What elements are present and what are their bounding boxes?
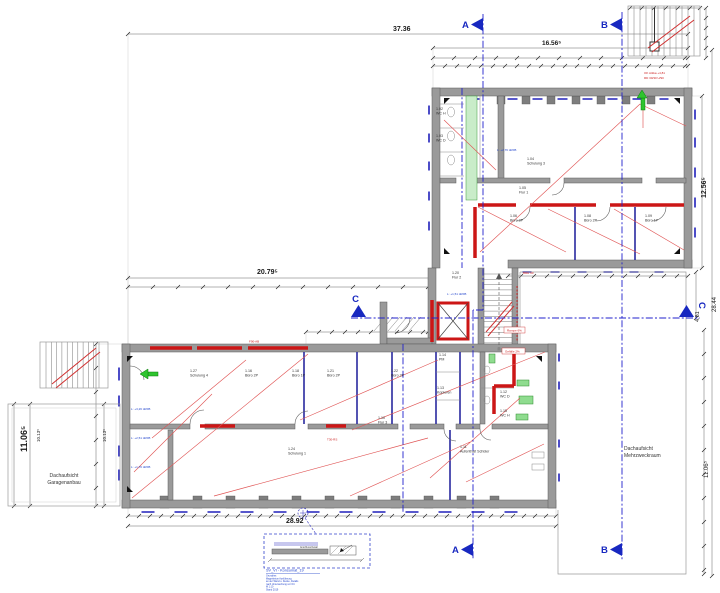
dim-wing-width: 16.56⁵ xyxy=(542,40,561,47)
upper-wing-south-wall xyxy=(508,260,692,268)
section-marker-a-bottom xyxy=(461,543,473,556)
dim-right-lower: 11.06⁵ xyxy=(703,460,710,478)
window-glyphs xyxy=(125,91,690,506)
note-brh: BRH 90 xyxy=(523,271,534,275)
room-102-name: WC H xyxy=(436,111,446,115)
entrance-arrows xyxy=(140,90,647,379)
section-marker-b-bottom xyxy=(610,543,622,556)
dim-mid-width: 20.79⁵ xyxy=(257,269,278,276)
section-marker-c-left xyxy=(351,305,366,317)
room-103-name: WC D xyxy=(436,138,446,142)
note-level-2: L: +1,51 üRFB xyxy=(447,292,466,296)
section-letter-b-bottom: B xyxy=(601,545,608,556)
garage-roof-label-1: Dachaufsicht xyxy=(50,473,80,479)
annotation-notes: OK Attika +4,81 RD 30/30 U/90 Rampe 6% G… xyxy=(131,71,665,549)
entrance-arrow-icon xyxy=(641,98,645,110)
note-t30: T30-RS xyxy=(327,438,337,442)
toilet-icon xyxy=(448,131,455,141)
room-118-name: Büro 1P xyxy=(292,373,306,377)
lower-wing-south-wall xyxy=(122,500,556,508)
section-marker-b-top xyxy=(610,18,622,31)
section-marker-a-top xyxy=(471,18,483,31)
room-116-name: Büro 2P xyxy=(245,373,259,377)
room-122-name: Büro 2P xyxy=(391,373,405,377)
stair-treads xyxy=(46,6,694,388)
wall-pier xyxy=(622,96,630,104)
room-114-name: PM xyxy=(439,357,444,361)
dim-left-inner-b: 10.13⁵ xyxy=(102,429,107,442)
room-111-name: Aufenthalt Schüler xyxy=(460,449,490,453)
mehrzweckraum-roof-outline xyxy=(520,272,686,574)
note-level-1: L: +2,76 üRFB xyxy=(497,148,516,152)
note-rampe: Rampe 6% xyxy=(507,329,522,333)
section-letter-c-right: C xyxy=(696,302,707,309)
floor-plan-drawing: 37.36 16.56⁵ 20.79⁵ 28.92 12.56⁵ 28.44 4… xyxy=(0,0,720,593)
room-115-name: WC H xyxy=(500,413,510,417)
note-level-5: L: +1,76 üRFB xyxy=(131,465,150,469)
toilet-icon xyxy=(448,107,455,117)
lower-wing-east-wall xyxy=(548,344,556,508)
wall-pier xyxy=(522,96,530,104)
note-f90: F90-AB xyxy=(249,340,259,344)
note-attika: OK Attika +4,81 xyxy=(644,71,665,75)
detail-reference-link[interactable]: SV_VI - Konsumat_19 xyxy=(266,569,304,573)
room-113-name: Kopieren xyxy=(437,390,451,394)
dim-left-height: 11.06⁵ xyxy=(19,426,29,452)
dim-left-inner-a: 10.13⁵ xyxy=(36,429,41,442)
note-level-3: L: +3,26 üRFB xyxy=(131,407,150,411)
entrance-arrow-icon xyxy=(148,372,158,376)
mehrzweck-roof-label-2: Mehrzweckraum xyxy=(624,453,661,459)
detector-symbols xyxy=(127,98,680,492)
wall-pier xyxy=(647,96,655,104)
section-marker-c-right xyxy=(679,305,694,317)
dim-right-gap: 4.81 xyxy=(695,311,701,322)
room-104-name: Schulung 3 xyxy=(527,161,545,165)
note-rd30: RD 30/30 U/90 xyxy=(644,76,664,80)
toilet-icon xyxy=(448,155,455,165)
garage-roof-label-2: Garagenanbau xyxy=(47,480,81,486)
upper-wing-north-wall xyxy=(432,88,692,96)
room-labels: 1.02WC H 1.03WC D 1.04Schulung 3 1.05Flu… xyxy=(190,107,659,455)
wall-pier xyxy=(597,96,605,104)
green-wall-strip xyxy=(466,96,477,200)
section-letter-a-top: A xyxy=(462,20,469,31)
mehrzweck-roof-label-1: Dachaufsicht xyxy=(624,446,654,452)
room-105-name: Flur 1 xyxy=(519,190,528,194)
walls xyxy=(122,88,692,508)
window-sills xyxy=(119,99,695,512)
note-gefaelle: Gefälle 2% xyxy=(505,350,520,354)
section-letter-b-top: B xyxy=(601,20,608,31)
room-106-name: Büro 2P xyxy=(510,218,524,222)
lower-wing-west-wall xyxy=(122,344,130,508)
note-detail: Anschluss Detail xyxy=(300,546,318,549)
wall-pier xyxy=(572,96,580,104)
dim-wing-height: 12.56⁵ xyxy=(701,177,708,198)
dim-right-total: 28.44 xyxy=(712,296,718,312)
dim-top-total: 37.36 xyxy=(393,26,411,33)
room-120-name: Flur 2 xyxy=(452,275,461,279)
detail-text-block: SV_VI - Konsumat_19 Grundriss Magerbeton… xyxy=(266,569,304,592)
room-112-name: WC D xyxy=(500,394,510,398)
fire-walls xyxy=(150,205,684,426)
detail-line-6: Stand 2019 xyxy=(266,589,279,592)
room-124-name: Schulung 1 xyxy=(288,451,306,455)
room-110-name: Flur 3 xyxy=(378,420,387,424)
wall-pier xyxy=(547,96,555,104)
room-108-name: Büro 2P xyxy=(584,218,598,222)
room-127-name: Schulung 4 xyxy=(190,373,208,377)
elevator-x xyxy=(438,303,468,339)
garage-stair-outline xyxy=(40,342,108,388)
dim-bottom-width: 28.92 xyxy=(286,518,304,525)
note-level-4: L: +2,51 üRFB xyxy=(131,436,150,440)
room-121-name: Büro 2P xyxy=(327,373,341,377)
garage-roof-outline xyxy=(8,404,120,506)
section-letter-c-left: C xyxy=(352,294,359,305)
drawing-canvas: 37.36 16.56⁵ 20.79⁵ 28.92 12.56⁵ 28.44 4… xyxy=(0,0,720,593)
room-109-name: Büro 1P xyxy=(645,218,659,222)
section-letter-a-bottom: A xyxy=(452,545,459,556)
